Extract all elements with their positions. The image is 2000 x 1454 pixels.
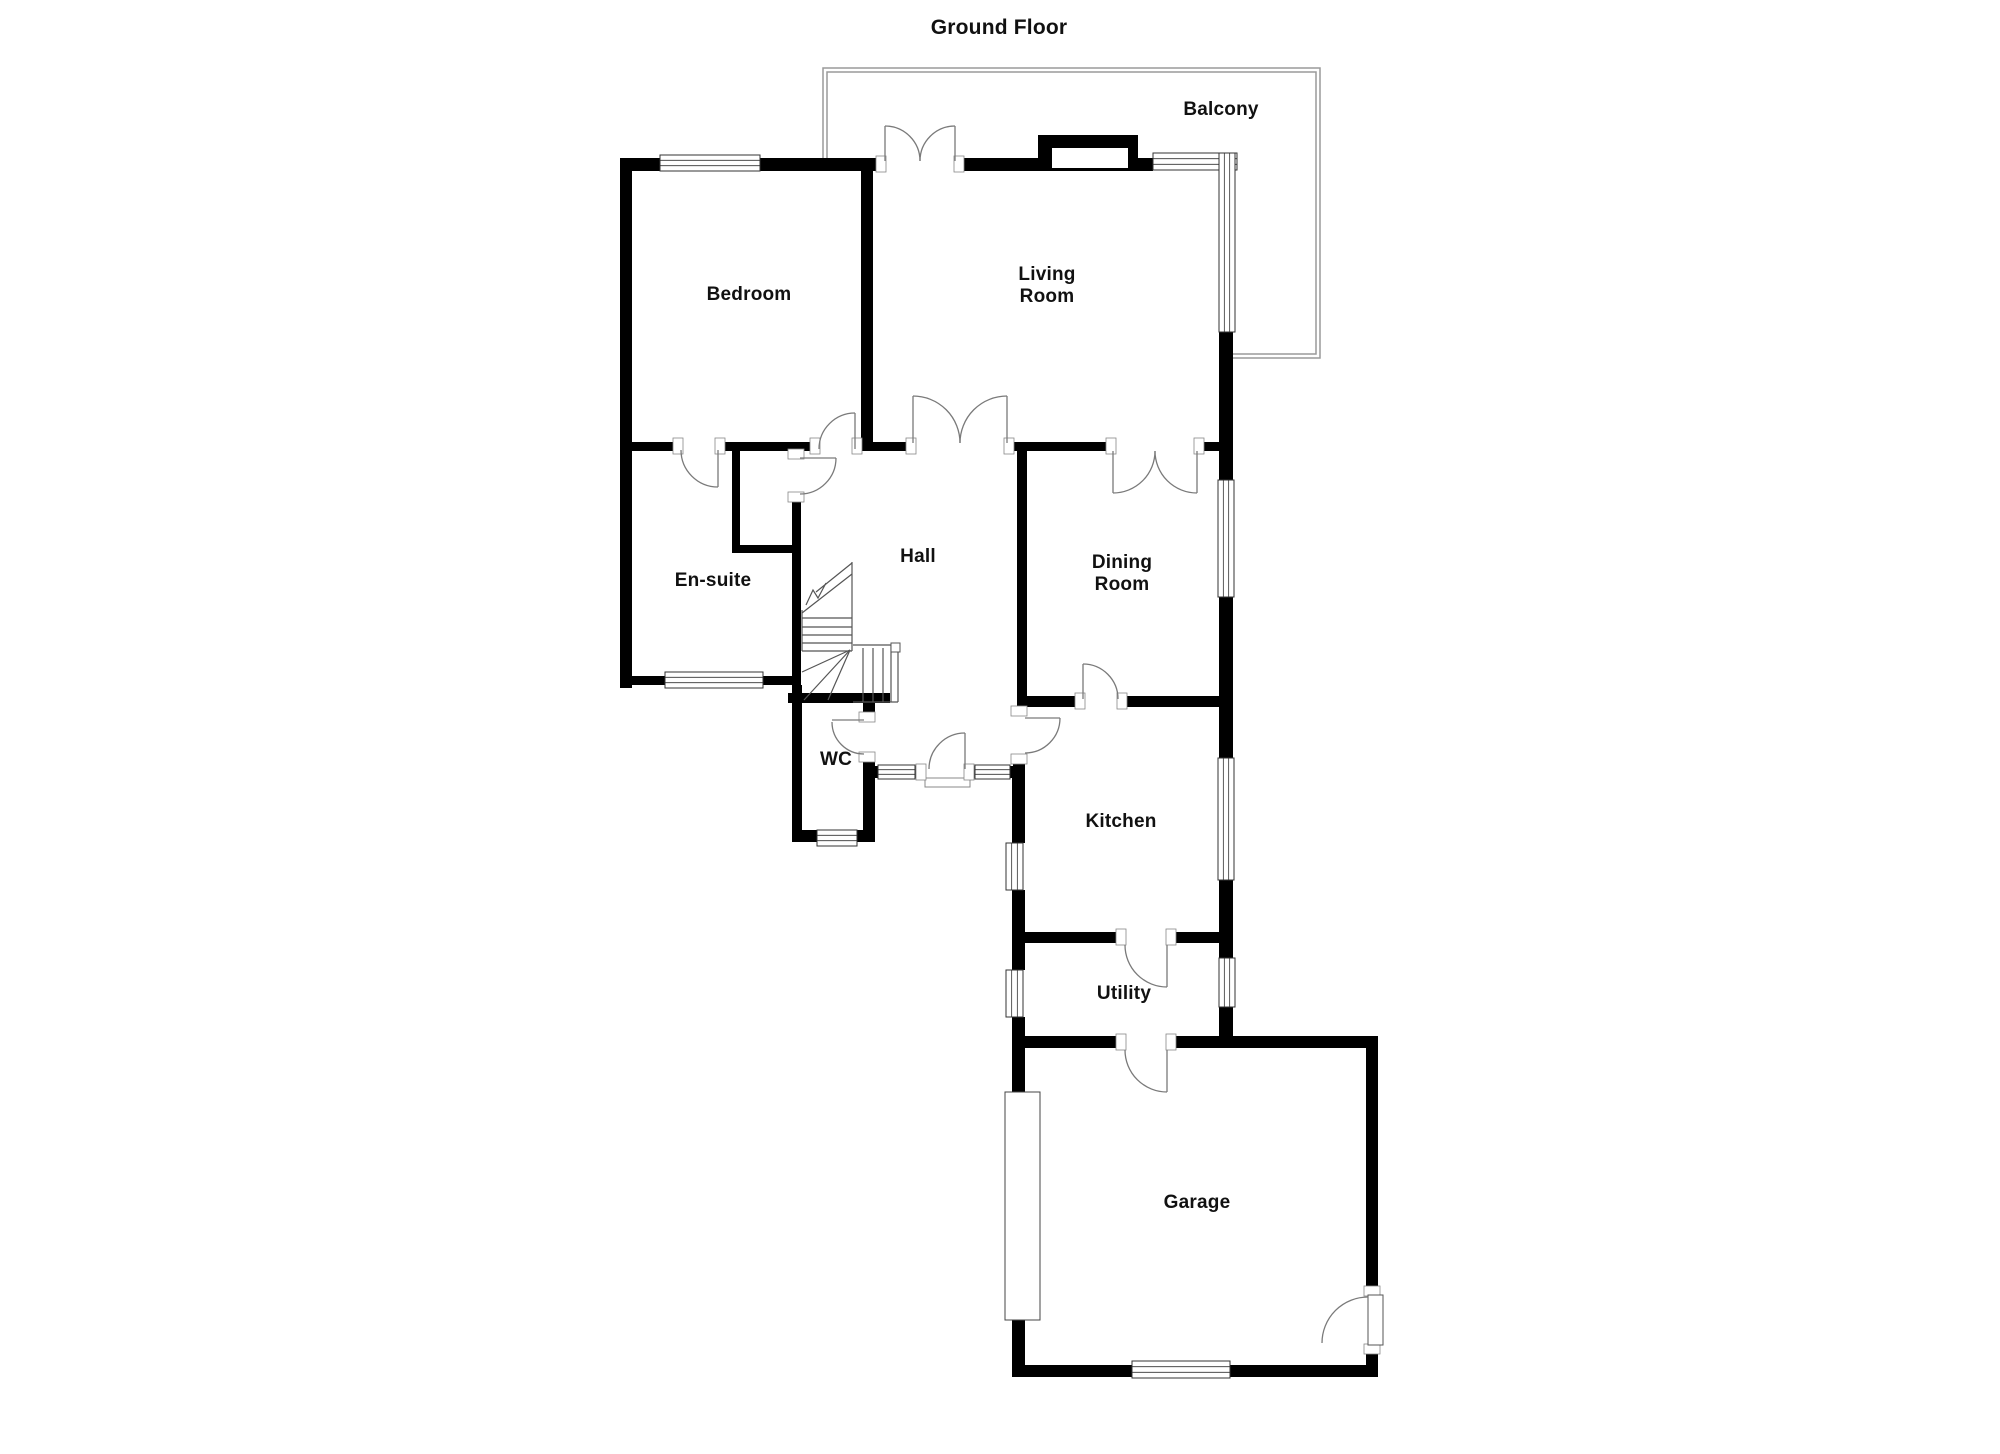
door-jamb — [715, 438, 725, 454]
wall — [1012, 890, 1025, 970]
door-arc-living-left — [913, 396, 960, 443]
door-jamb — [1117, 693, 1127, 709]
wall — [1219, 880, 1233, 958]
stair-line — [804, 650, 850, 700]
wall — [957, 158, 1038, 171]
garage-vehicle-door — [1005, 1092, 1040, 1320]
wall — [620, 158, 632, 688]
door-jamb — [1011, 754, 1027, 764]
stair-line — [802, 574, 852, 613]
window — [1218, 480, 1234, 597]
window — [1132, 1361, 1230, 1378]
door-arc-living-right — [960, 396, 1007, 443]
door-arc-dining-right — [1155, 451, 1197, 493]
window — [878, 765, 915, 779]
door-jamb — [1194, 438, 1204, 454]
wall — [1167, 1036, 1378, 1048]
room-label-kitchen: Kitchen — [1085, 811, 1156, 833]
window — [1006, 843, 1023, 890]
wall — [855, 442, 913, 451]
chimney-recess — [1052, 148, 1128, 168]
room-label-en-suite: En-suite — [675, 570, 752, 592]
wall — [1012, 1320, 1025, 1377]
room-label-dining-room: Dining Room — [1092, 552, 1152, 596]
door-jamb — [916, 764, 926, 780]
wall — [1230, 1365, 1378, 1377]
door-jamb — [1011, 706, 1027, 716]
stair-newel-post — [891, 643, 900, 652]
door-jamb — [1106, 438, 1116, 454]
window — [1219, 958, 1235, 1007]
door-jamb — [1166, 929, 1176, 945]
wall — [792, 493, 801, 685]
wall — [863, 753, 875, 842]
wall — [1012, 1048, 1025, 1092]
wall — [1012, 777, 1025, 843]
wall — [1118, 696, 1232, 707]
door-arc-bedroom — [819, 413, 855, 449]
door-arc-front-entrance — [929, 733, 965, 769]
door-arc-utility — [1125, 945, 1167, 987]
door-arc-balcony-left — [885, 126, 920, 161]
room-label-living-room: Living Room — [1018, 264, 1075, 308]
wall — [1366, 1036, 1378, 1295]
front-door-threshold — [925, 778, 970, 787]
door-jamb — [852, 438, 862, 454]
floor-plan-canvas — [0, 0, 2000, 1454]
wall — [861, 168, 873, 451]
window — [975, 765, 1010, 779]
door-jamb — [906, 438, 916, 454]
door-arc-dining-left — [1113, 451, 1155, 493]
door-leaf-garage-side — [1368, 1295, 1383, 1345]
wall — [1219, 330, 1233, 480]
stair-line — [828, 650, 850, 700]
wall — [792, 685, 802, 842]
room-label-garage: Garage — [1164, 1192, 1231, 1214]
door-arc-utility-garage — [1125, 1050, 1167, 1092]
door-arc-balcony-right — [920, 126, 955, 161]
wall — [1012, 1365, 1132, 1377]
window — [1219, 153, 1235, 332]
wall — [620, 442, 680, 451]
wall — [1219, 597, 1233, 758]
door-arc-cupboard — [800, 458, 836, 494]
room-label-hall: Hall — [900, 546, 936, 568]
room-label-balcony: Balcony — [1183, 99, 1258, 121]
window — [817, 830, 857, 846]
window — [665, 672, 763, 688]
wall — [732, 545, 798, 553]
wall — [1012, 932, 1125, 943]
door-jamb — [1116, 929, 1126, 945]
door-jamb — [1004, 438, 1014, 454]
door-arc-ensuite — [681, 450, 718, 487]
door-arc-kitchen — [1025, 718, 1060, 753]
window — [1218, 758, 1234, 880]
wall — [1017, 696, 1082, 707]
window — [660, 155, 760, 171]
room-label-bedroom: Bedroom — [707, 284, 792, 306]
window — [1006, 970, 1023, 1017]
plan-title: Ground Floor — [931, 16, 1068, 40]
wall — [732, 450, 740, 553]
floor-plan: Ground Floor Balcony Bedroom Living Room… — [0, 0, 2000, 1454]
door-arc-dining-kitchen — [1083, 664, 1118, 699]
room-label-utility: Utility — [1097, 983, 1151, 1005]
room-label-wc: WC — [820, 749, 852, 771]
door-arc-garage-side — [1322, 1297, 1368, 1343]
door-jamb — [1166, 1034, 1176, 1050]
wall — [1012, 1036, 1125, 1048]
wall — [1017, 442, 1027, 707]
wall — [1138, 158, 1153, 171]
stair-line — [802, 650, 850, 672]
door-jamb — [1116, 1034, 1126, 1050]
